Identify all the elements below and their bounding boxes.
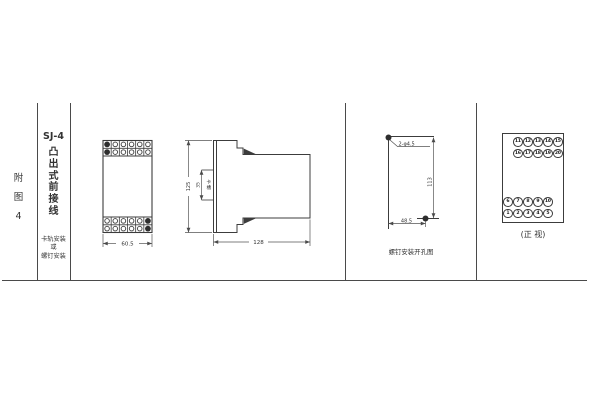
terminal: 15 xyxy=(553,137,563,147)
terminal: 13 xyxy=(533,137,543,147)
drill-hole-drawing: 2-φ4.5 113 48.5 xyxy=(352,125,447,240)
front-face-caption: (正 视) xyxy=(502,229,564,240)
terminal-block-grid xyxy=(103,141,152,233)
terminal: 3 xyxy=(523,209,533,219)
height-dim-label: 125 xyxy=(186,182,192,192)
table-divider-3 xyxy=(345,103,346,280)
slot-name-char: 卡 xyxy=(206,179,211,186)
mount-hole-top xyxy=(386,135,392,141)
terminal: 8 xyxy=(523,197,533,207)
terminal: 2 xyxy=(513,209,523,219)
figure-canvas: 附 图 4 SJ-4 凸 出 式 前 接 线 卡轨安装 或 螺钉安装 xyxy=(0,0,600,400)
terminal: 16 xyxy=(513,149,523,159)
model-label: SJ-4 xyxy=(37,131,70,142)
slot-dim-label: 35 xyxy=(196,182,202,188)
depth-dim-label: 128 xyxy=(253,240,264,246)
type-char: 接 xyxy=(37,194,70,206)
terminal: 19 xyxy=(543,149,553,159)
terminal: 20 xyxy=(553,149,563,159)
drill-caption: 螺钉安装开孔图 xyxy=(371,247,451,256)
type-char: 式 xyxy=(37,171,70,183)
figure-char: 附 xyxy=(0,169,37,188)
type-char: 凸 xyxy=(37,147,70,159)
mount-note-line: 螺钉安装 xyxy=(35,253,72,261)
table-bottom-border xyxy=(2,280,587,281)
width-dim-label: 60.5 xyxy=(121,242,134,248)
figure-number: 附 图 4 xyxy=(0,169,37,226)
relay-side-outline xyxy=(213,141,310,233)
terminal: 1 xyxy=(503,209,513,219)
terminal: 11 xyxy=(513,137,523,147)
figure-char: 图 xyxy=(0,188,37,207)
type-char: 前 xyxy=(37,182,70,194)
type-char: 出 xyxy=(37,159,70,171)
mount-note: 卡轨安装 或 螺钉安装 xyxy=(35,236,72,261)
wiring-type-label: 凸 出 式 前 接 线 xyxy=(37,147,70,218)
drill-width-dim-label: 48.5 xyxy=(401,218,412,224)
terminal: 7 xyxy=(513,197,523,207)
table-divider-4 xyxy=(476,103,477,280)
mount-note-line: 或 xyxy=(35,244,72,252)
terminal: 18 xyxy=(533,149,543,159)
panel-wedge-marks xyxy=(244,149,256,224)
slot-name-char: 槽 xyxy=(206,184,211,191)
figure-char: 4 xyxy=(0,207,37,226)
terminal: 10 xyxy=(543,197,553,207)
terminal: 12 xyxy=(523,137,533,147)
terminal: 17 xyxy=(523,149,533,159)
terminal: 4 xyxy=(533,209,543,219)
terminal-layout-box: 11 12 13 14 15 16 17 18 19 20 6 7 8 9 10… xyxy=(502,133,564,223)
drill-height-dim-label: 113 xyxy=(428,177,434,187)
hole-size-label: 2-φ4.5 xyxy=(399,141,415,147)
terminal: 9 xyxy=(533,197,543,207)
front-view-drawing: 60.5 xyxy=(95,130,165,252)
terminal: 5 xyxy=(543,209,553,219)
side-view-drawing: 35 卡 槽 125 128 xyxy=(180,130,320,250)
terminal: 14 xyxy=(543,137,553,147)
terminal: 6 xyxy=(503,197,513,207)
mount-hole-bottom xyxy=(423,216,429,222)
type-char: 线 xyxy=(37,206,70,218)
